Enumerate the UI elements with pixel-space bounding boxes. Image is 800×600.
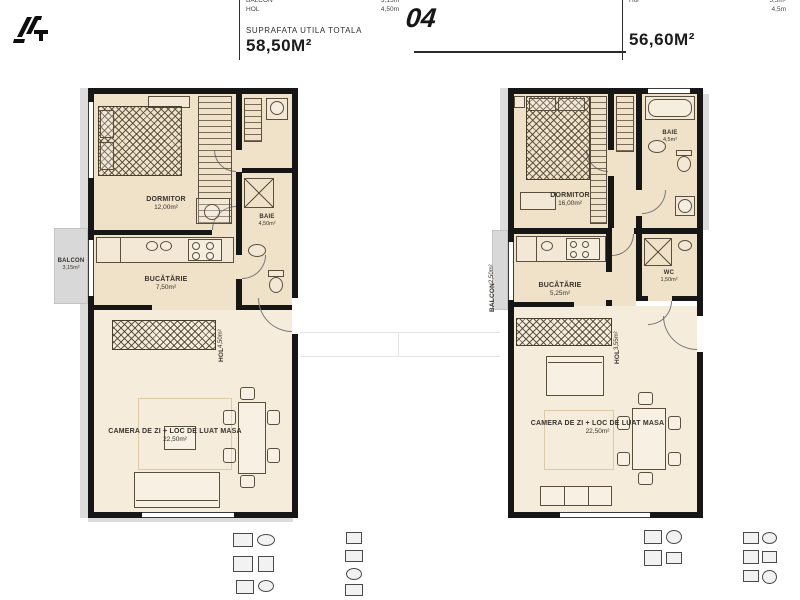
counter-divider — [536, 236, 537, 262]
nightstand — [514, 96, 525, 108]
wall — [88, 88, 298, 94]
counter-divider — [120, 237, 121, 263]
rug — [544, 410, 614, 470]
chair — [617, 452, 630, 466]
sink — [248, 244, 266, 257]
toilet-bowl — [677, 156, 691, 172]
chair — [223, 410, 236, 425]
door-opening — [212, 230, 236, 235]
window — [560, 512, 650, 518]
chair — [223, 448, 236, 463]
pillow — [100, 110, 114, 138]
wall — [94, 305, 152, 310]
toilet-bowl — [269, 277, 283, 293]
chair — [668, 452, 681, 466]
legend-furniture-glyph — [666, 552, 682, 564]
window — [648, 88, 690, 94]
room-label-bucatarie: BUCĂTĂRIE 5,25m² — [516, 282, 604, 299]
sink-bowl — [160, 241, 172, 251]
wardrobe-cabinet — [516, 318, 612, 346]
room-label-living: CAMERA DE ZI + LOC DE LUAT MASA 22,50m² — [100, 428, 250, 445]
legend-furniture-glyph — [644, 550, 662, 566]
room-label-baie: BAIE 4,5m² — [645, 130, 695, 144]
chair — [240, 475, 255, 488]
legend-row: HOL 4,50m — [246, 5, 399, 14]
room-label-wc: WC 1,50m² — [644, 270, 694, 284]
entrance-door-opening — [697, 316, 703, 352]
legend-furniture-glyph — [346, 532, 362, 544]
sideboard-divider — [588, 486, 589, 506]
pillow — [529, 98, 556, 111]
room-label-dormitor: DORMITOR 16,00m² — [530, 192, 610, 209]
shower — [644, 238, 672, 266]
legend-furniture-glyph — [345, 584, 363, 596]
legend-furniture-glyph — [743, 532, 759, 544]
chair — [240, 387, 255, 400]
door-opening — [606, 272, 612, 300]
window — [88, 102, 94, 178]
room-label-hol: HOL 4,50m² — [218, 316, 226, 362]
pillow — [100, 142, 114, 170]
total-area-value: 58,50M² — [246, 36, 399, 55]
area-legend-left: BALCON 3,15m HOL 4,50m SUPRAFATA UTILA T… — [239, 0, 399, 60]
area-legend-right: Hol 5,5m² 4,5m 56,60M² — [622, 0, 786, 60]
chair — [638, 472, 653, 485]
burner — [582, 251, 589, 258]
legend-furniture-glyph — [743, 550, 759, 564]
wall — [697, 88, 703, 518]
total-area-label: SUPRAFATA UTILA TOTALA — [246, 26, 399, 36]
burner — [582, 241, 589, 248]
sink-bowl — [146, 241, 158, 251]
legend-furniture-glyph — [345, 550, 363, 562]
legend-row: 4,5m — [629, 5, 786, 14]
header-divider-line — [414, 51, 626, 53]
burner — [192, 242, 200, 250]
bathtub-inner — [648, 99, 692, 117]
door-opening — [608, 150, 614, 176]
burner — [206, 242, 214, 250]
floorplan-sheet: BALCON 3,15m HOL 4,50m SUPRAFATA UTILA T… — [0, 0, 800, 600]
sink — [678, 240, 692, 251]
corridor-faint-line — [398, 332, 399, 356]
corridor-faint-line — [300, 356, 500, 357]
legend-furniture-glyph — [762, 532, 777, 544]
pillow — [558, 98, 585, 111]
unit-number: 04 — [404, 3, 437, 33]
washing-machine-drum — [270, 101, 284, 115]
closet-shelf — [616, 96, 634, 152]
legend-room-value: 4,50m — [381, 5, 399, 14]
brand-logo-icon — [12, 14, 52, 48]
wardrobe-cabinet — [112, 320, 216, 350]
chair — [267, 410, 280, 425]
room-label-baie: BAIE 4,50m² — [243, 214, 291, 228]
legend-furniture-glyph — [233, 533, 253, 547]
facade-shadow-strip — [88, 518, 293, 522]
window — [142, 512, 234, 518]
burner — [570, 251, 577, 258]
total-area-value: 56,60M² — [629, 30, 786, 49]
chair — [638, 392, 653, 405]
wall — [514, 302, 574, 307]
corridor-faint-line — [300, 332, 500, 333]
legend-furniture-glyph — [644, 530, 662, 544]
sofa — [134, 472, 220, 508]
room-label-dormitor: DORMITOR 12,00m² — [118, 196, 214, 213]
facade-shadow-strip — [703, 94, 709, 230]
wall — [636, 234, 642, 298]
bathroom-shelf — [244, 98, 262, 142]
wall — [242, 168, 292, 173]
shower — [244, 178, 274, 208]
washing-machine-drum — [678, 199, 692, 213]
sink-bowl — [541, 241, 553, 251]
burner — [570, 241, 577, 248]
legend-furniture-glyph — [258, 580, 274, 592]
legend-room-value: 4,5m — [772, 5, 786, 14]
legend-furniture-glyph — [257, 534, 275, 546]
chair — [267, 448, 280, 463]
room-label-balcon: BALCON 3,15m² — [50, 258, 92, 272]
sideboard — [540, 486, 612, 506]
dining-table — [632, 408, 666, 470]
balcony-door-window — [508, 242, 514, 300]
room-label-hol: HOL 3,55m² — [614, 316, 622, 364]
legend-furniture-glyph — [666, 530, 682, 544]
legend-furniture-glyph — [233, 556, 253, 572]
legend-furniture-glyph — [346, 568, 362, 580]
legend-furniture-glyph — [258, 556, 274, 572]
legend-furniture-glyph — [762, 570, 777, 584]
sofa-back-line — [548, 362, 602, 363]
legend-room-label: HOL — [246, 5, 259, 14]
room-label-bucatarie: BUCĂTĂRIE 7,50m² — [118, 276, 214, 293]
legend-furniture-glyph — [236, 580, 254, 594]
legend-room-label: Hol — [629, 0, 639, 5]
sofa-back-line — [136, 500, 218, 501]
door-opening — [236, 150, 242, 172]
room-label-balcon: BALCON 2,50m² — [489, 240, 497, 312]
toilet-tank — [268, 270, 284, 277]
legend-furniture-glyph — [762, 551, 777, 563]
burner — [206, 252, 214, 260]
entrance-door-opening — [292, 298, 298, 334]
burner — [192, 252, 200, 260]
room-label-living: CAMERA DE ZI + LOC DE LUAT MASA 22,50m² — [515, 420, 680, 437]
sideboard-divider — [564, 486, 565, 506]
legend-furniture-glyph — [743, 570, 759, 582]
